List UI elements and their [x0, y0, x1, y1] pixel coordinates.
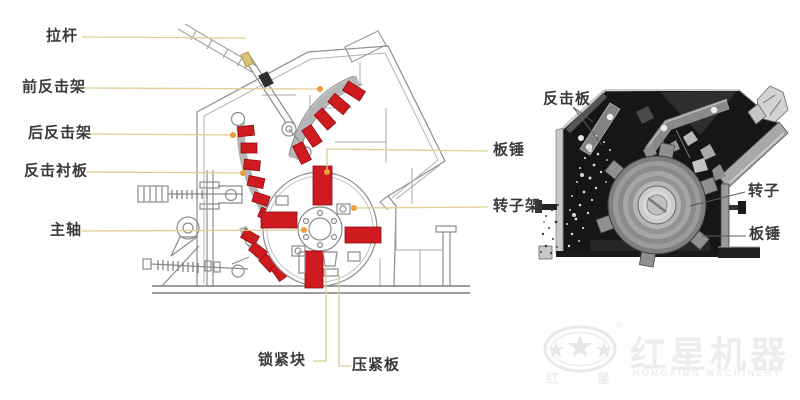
label-rear-impact-frame: 后反击架 [28, 127, 92, 142]
impact-crusher-figure: 拉杆 前反击架 后反击架 反击衬板 主轴 锁紧块 压紧板 板锤 转子架 反击板 … [0, 0, 800, 400]
label-blow-bar: 板锤 [493, 144, 525, 159]
label-rotor-frame: 转子架 [493, 200, 541, 215]
star-icon [547, 334, 612, 358]
label-main-shaft: 主轴 [50, 224, 82, 239]
brand-logo-watermark [545, 327, 615, 371]
label-rotor: 转子 [748, 185, 780, 200]
label-impact-plate: 反击板 [543, 93, 591, 108]
label-press-plate: 压紧板 [352, 359, 400, 374]
registered-trademark-icon: ® [616, 320, 623, 330]
label-pull-rod: 拉杆 [46, 30, 78, 45]
label-blow-bar-photo: 板锤 [749, 228, 781, 243]
label-front-impact-frame: 前反击架 [22, 81, 86, 96]
brand-seal-right: 星 [597, 368, 610, 387]
label-lock-block: 锁紧块 [258, 354, 306, 369]
brand-seal-left: 红 [546, 368, 559, 387]
left-technical-drawing [138, 24, 470, 293]
brand-watermark-en: HONGXING MACHINERY [633, 368, 782, 378]
label-impact-liner-plate: 反击衬板 [24, 165, 88, 180]
